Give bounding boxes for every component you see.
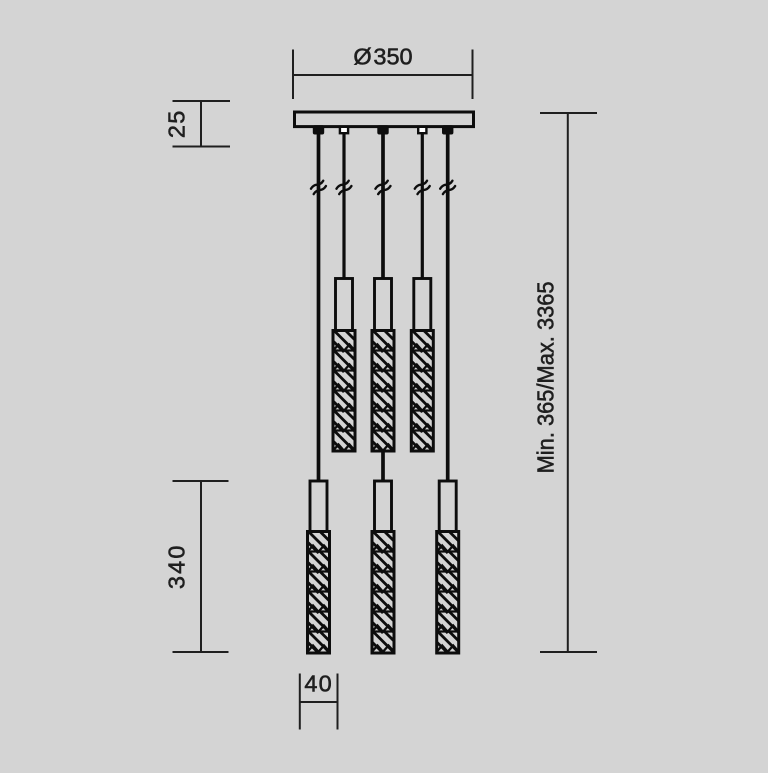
svg-text:40: 40 (304, 671, 333, 697)
svg-text:Ø350: Ø350 (353, 44, 412, 70)
svg-text:Min. 365/Max. 3365: Min. 365/Max. 3365 (533, 281, 559, 473)
svg-text:25: 25 (164, 110, 190, 139)
svg-text:340: 340 (164, 543, 190, 589)
